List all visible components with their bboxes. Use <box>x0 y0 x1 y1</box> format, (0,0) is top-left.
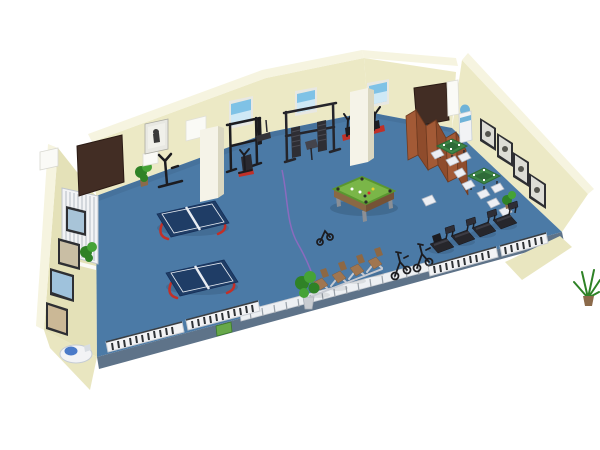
column-2 <box>350 88 374 166</box>
plant-foliage <box>299 288 309 298</box>
picture-back-wall <box>145 119 168 154</box>
picture-art <box>502 146 508 152</box>
plant-pot <box>583 296 594 306</box>
plant-foliage <box>508 191 516 199</box>
render-canvas <box>0 0 600 450</box>
picture-art <box>485 131 491 137</box>
machine-post <box>266 120 267 132</box>
column-front <box>350 88 368 166</box>
pool-ball <box>364 195 367 198</box>
column-side <box>368 88 374 162</box>
mahjong-tile <box>483 179 485 181</box>
mahjong-tile <box>473 174 475 176</box>
left-wall-notch <box>40 148 58 170</box>
plant-foliage <box>309 283 320 294</box>
pool-ball <box>372 188 375 191</box>
pool-pocket <box>336 187 339 190</box>
mahjong-tile <box>483 169 485 171</box>
pool-ball <box>351 188 354 191</box>
palm-plant-right <box>574 270 600 306</box>
pool-ball <box>368 192 371 195</box>
mahjong-tile <box>493 174 495 176</box>
picture-content <box>68 209 84 233</box>
column-front <box>200 126 218 202</box>
pool-pocket <box>360 177 363 180</box>
plant-foliage <box>140 174 148 182</box>
plant-foliage <box>85 254 93 262</box>
plant-foliage <box>87 242 97 252</box>
mahjong-tile <box>458 144 460 146</box>
palm-fronds <box>574 270 600 298</box>
wall-cabinet <box>447 80 459 116</box>
pool-pocket <box>388 189 391 192</box>
pool-pocket <box>364 200 367 203</box>
mahjong-tile <box>443 144 445 146</box>
pool-ball <box>359 191 362 194</box>
column-side <box>218 126 224 198</box>
plant-foliage <box>304 271 316 283</box>
column-1 <box>200 126 224 202</box>
picture-art <box>534 187 540 193</box>
floorplan-3d-render <box>0 0 600 450</box>
plant-pot <box>303 297 314 309</box>
picture-art <box>518 166 524 172</box>
gym-seat-post <box>311 148 312 160</box>
fountain-bowl <box>65 347 78 356</box>
picture-figure <box>153 133 160 143</box>
mahjong-tile <box>450 148 452 150</box>
mahjong-tile <box>450 140 452 142</box>
